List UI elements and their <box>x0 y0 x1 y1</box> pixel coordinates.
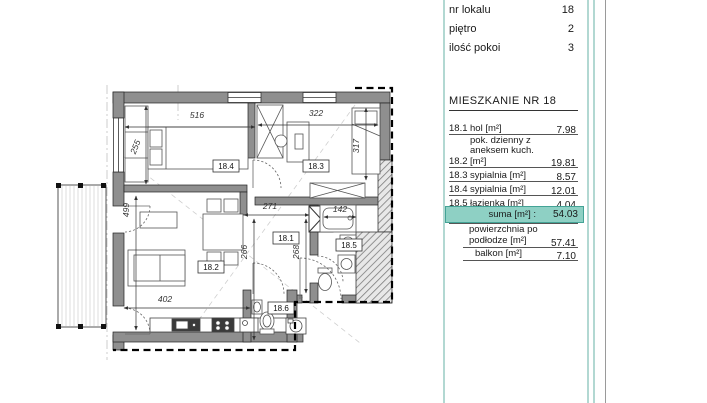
right-teal-divider-1 <box>587 0 589 403</box>
room-row-18-4: 18.4 sypialnia [m²] 12.01 <box>449 182 578 196</box>
extra-row-balkon: balkon [m²] 7.10 <box>463 248 578 261</box>
furniture-bedroom-small <box>257 105 380 198</box>
room-no: 18.3 <box>449 170 470 181</box>
room-no: 18.2 <box>449 156 470 167</box>
extra-row-podloga: powierzchnia po podłodze [m²] 57.41 <box>463 224 578 248</box>
room-name-line2: aneksem kuch. [m²] <box>470 145 534 166</box>
furniture-living <box>128 199 243 286</box>
sum-value: 54.03 <box>540 209 583 220</box>
room-area: 19.81 <box>540 158 578 169</box>
floor-plan: 516 322 255 317 271 142 266 268 499 402 … <box>0 0 707 403</box>
room-area: 12.01 <box>540 186 578 197</box>
room-area: 7.98 <box>540 125 578 136</box>
extra-area-table: powierzchnia po podłodze [m²] 57.41 balk… <box>463 224 578 261</box>
left-teal-divider <box>443 0 445 403</box>
info-row-nr-lokalu: nr lokalu 18 <box>449 4 578 23</box>
info-row-pietro: piętro 2 <box>449 23 578 42</box>
extra-label: balkon [m²] <box>463 249 540 260</box>
room-name: hol [m²] <box>470 124 540 134</box>
room-area: 8.57 <box>540 172 578 183</box>
info-label: piętro <box>449 23 477 35</box>
room-name: sypialnia [m²] <box>470 171 540 181</box>
sum-label: suma [m²] : <box>446 209 540 220</box>
info-value: 2 <box>568 23 578 35</box>
right-teal-divider-2 <box>593 0 595 403</box>
room-no: 18.1 <box>449 123 470 134</box>
balcony <box>56 183 106 329</box>
info-value: 18 <box>562 4 578 16</box>
dim-266: 266 <box>239 245 249 260</box>
room-row-18-2: 18.2 pok. dzienny z aneksem kuch. [m²] 1… <box>449 135 578 168</box>
room-row-18-3: 18.3 sypialnia [m²] 8.57 <box>449 168 578 182</box>
right-gray-divider <box>605 0 606 403</box>
dim-317: 317 <box>351 139 361 153</box>
dim-516: 516 <box>190 110 204 120</box>
room-label-18-2: 18.2 <box>203 263 219 272</box>
room-label-18-6: 18.6 <box>273 304 289 313</box>
sum-row: suma [m²] : 54.03 <box>445 206 584 223</box>
room-label-18-4: 18.4 <box>218 162 234 171</box>
dim-268: 268 <box>291 245 301 260</box>
room-label-18-5: 18.5 <box>341 241 357 250</box>
extra-label: powierzchnia po podłodze [m²] <box>463 225 540 247</box>
extra-value: 57.41 <box>540 238 578 249</box>
dim-322: 322 <box>309 108 323 118</box>
info-value: 3 <box>568 42 578 54</box>
apartment-heading: MIESZKANIE NR 18 <box>449 95 578 111</box>
room-no: 18.4 <box>449 184 470 195</box>
info-label: ilość pokoi <box>449 42 500 54</box>
room-name: pok. dzienny z aneksem kuch. [m²] <box>470 136 540 167</box>
dim-142: 142 <box>333 204 347 214</box>
kitchen <box>150 318 306 334</box>
dim-499: 499 <box>121 203 131 217</box>
unit-info-table: nr lokalu 18 piętro 2 ilość pokoi 3 <box>449 4 578 61</box>
extra-value: 7.10 <box>540 251 578 262</box>
info-row-ilosc-pokoi: ilość pokoi 3 <box>449 42 578 61</box>
room-label-18-1: 18.1 <box>278 234 294 243</box>
extra-label-line2: podłodze [m²] <box>469 235 527 246</box>
floor-plan-sheet: 516 322 255 317 271 142 266 268 499 402 … <box>0 0 707 403</box>
room-name: sypialnia [m²] <box>470 185 540 195</box>
info-label: nr lokalu <box>449 4 491 16</box>
room-label-18-3: 18.3 <box>308 162 324 171</box>
dim-402: 402 <box>158 294 172 304</box>
room-row-18-1: 18.1 hol [m²] 7.98 <box>449 121 578 135</box>
hatched-walls <box>356 160 392 303</box>
dim-271: 271 <box>262 201 277 211</box>
